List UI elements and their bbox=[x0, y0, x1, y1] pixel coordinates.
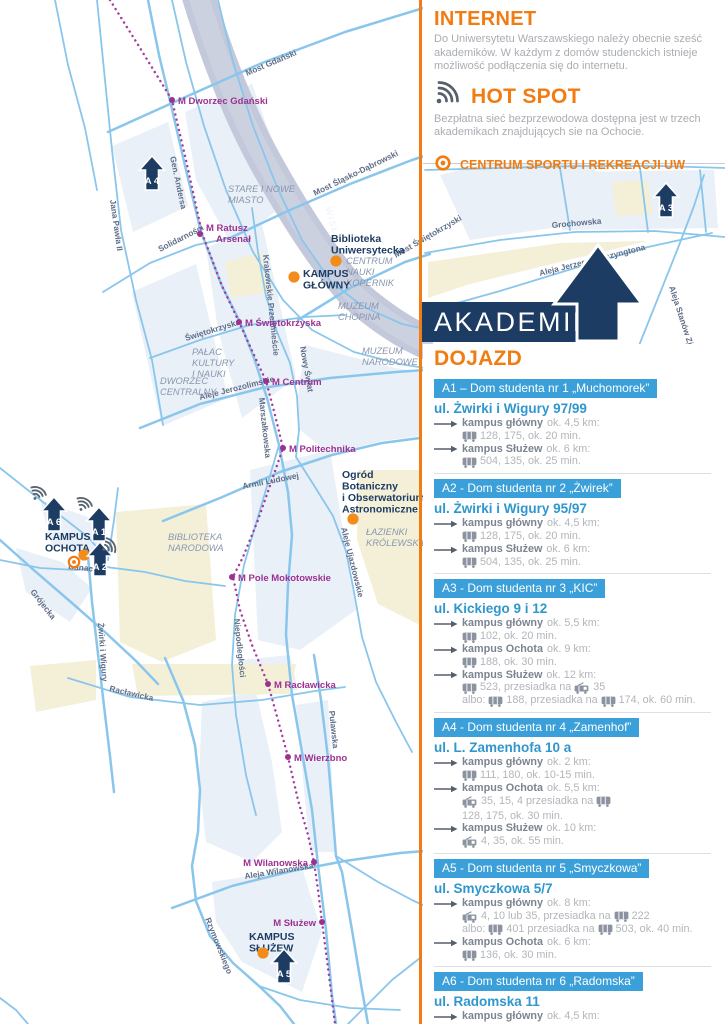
akademiki-poster: WISŁAMost GdańskiGen. AndersaJana Pawła … bbox=[0, 0, 725, 1024]
route: kampus głównyok. 5,5 km:102, ok. 20 min. bbox=[434, 618, 711, 643]
metro-station-label: M Służew bbox=[273, 918, 316, 929]
route-detail-text: 188, ok. 30 min. bbox=[480, 657, 557, 669]
route-detail-text: 102, ok. 20 min. bbox=[480, 631, 557, 643]
district-label: MIASTO bbox=[228, 195, 263, 205]
route-destination: kampus Ochota bbox=[462, 644, 543, 656]
bus-icon bbox=[462, 557, 477, 568]
place-label: i Obserwatorium bbox=[342, 492, 425, 504]
route-detail-text: 35 bbox=[593, 682, 605, 694]
route-detail-row: 504, 135, ok. 25 min. bbox=[434, 557, 711, 569]
place-label: Botaniczny bbox=[342, 481, 398, 493]
bus-icon bbox=[598, 924, 613, 935]
metro-station-dot bbox=[229, 574, 235, 580]
district-label: MUZEUM bbox=[362, 346, 403, 356]
route: kampus Ochotaok. 5,5 km:35, 15, 4 przesi… bbox=[434, 783, 711, 823]
place-label: GŁÓWNY bbox=[303, 279, 350, 292]
street-label: Most Gdański bbox=[244, 47, 298, 77]
dojazd-panel: DOJAZD A1 – Dom studenta nr 1 „Muchomore… bbox=[423, 344, 725, 1024]
metro-station-label: Arsenał bbox=[216, 234, 251, 245]
route: kampus Ochotaok. 9 km:188, ok. 30 min. bbox=[434, 644, 711, 669]
route: kampus głównyok. 4,5 km:9, 7, 25 i przes… bbox=[434, 1011, 711, 1024]
district-label: DWORZEC bbox=[160, 376, 208, 386]
map-arrow-label: A 4 bbox=[145, 176, 160, 187]
campus-dot bbox=[330, 255, 341, 266]
route-destination: kampus Służew bbox=[462, 823, 542, 835]
district-label: MUZEUM bbox=[338, 301, 379, 311]
bus-icon bbox=[488, 924, 503, 935]
route: kampus Ochotaok. 6 km:136, ok. 30 min. bbox=[434, 937, 711, 962]
bus-icon bbox=[462, 683, 477, 694]
route-detail-text: 401 przesiadka na bbox=[506, 924, 594, 936]
orange-divider-line bbox=[419, 0, 422, 1024]
route-distance: ok. 9 km: bbox=[547, 644, 591, 656]
route-detail-text: 222 bbox=[632, 911, 650, 923]
route-detail-row: 102, ok. 20 min. bbox=[434, 631, 711, 643]
route-detail-text: 504, 135, ok. 25 min. bbox=[480, 557, 581, 569]
street-label: Żwirki i Wigury bbox=[96, 622, 110, 682]
campus-dot bbox=[257, 947, 268, 958]
hotspot-text: Bezpłatna sieć bezprzewodowa dostępna je… bbox=[434, 113, 711, 140]
route-detail-row: albo: 401 przesiadka na 503, ok. 40 min. bbox=[434, 924, 711, 936]
route-destination: kampus Służew bbox=[462, 544, 542, 556]
route-detail-text: 504, 135, ok. 25 min. bbox=[480, 456, 581, 468]
district-label: BIBLIOTEKA bbox=[168, 532, 222, 542]
route-distance: ok. 4,5 km: bbox=[547, 518, 600, 530]
route-distance: ok. 4,5 km: bbox=[547, 1011, 600, 1023]
place-label: KAMPUS bbox=[45, 531, 91, 543]
internet-heading: INTERNET bbox=[434, 8, 711, 31]
route-detail-text: 136, ok. 30 min. bbox=[480, 950, 557, 962]
metro-station-dot bbox=[265, 681, 271, 687]
metro-station-label: M Wilanowska bbox=[243, 858, 309, 869]
street-label: Most Śląsko-Dąbrowski bbox=[311, 147, 400, 198]
district-label: KOPERNIK bbox=[346, 278, 395, 288]
district-label: NAUKI bbox=[346, 267, 375, 277]
route-detail-text: 523, przesiadka na bbox=[480, 682, 571, 694]
route-destination: kampus Służew bbox=[462, 670, 542, 682]
street-label: Marszałkowska bbox=[257, 397, 273, 459]
district-label: KULTURY bbox=[192, 358, 235, 368]
route-destination: kampus Ochota bbox=[462, 783, 543, 795]
route: kampus głównyok. 4,5 km:128, 175, ok. 20… bbox=[434, 518, 711, 543]
bullseye-icon bbox=[434, 154, 452, 177]
map-block bbox=[30, 660, 96, 712]
route-arrow-icon bbox=[434, 646, 458, 654]
street-label: Solidarności bbox=[156, 222, 205, 254]
route-arrow-icon bbox=[434, 620, 458, 628]
sport-center-label: CENTRUM SPORTU I REKREACJI UW bbox=[460, 158, 685, 172]
route: kampus głównyok. 4,5 km:128, 175, ok. 20… bbox=[434, 418, 711, 443]
map-arrow-label: A 1 bbox=[92, 527, 107, 538]
metro-station-dot bbox=[280, 445, 286, 451]
route-detail-text: 35, 15, 4 przesiadka na bbox=[481, 796, 593, 808]
route-arrow-icon bbox=[434, 671, 458, 679]
route-arrow-icon bbox=[434, 445, 458, 453]
dorm-address: ul. Żwirki i Wigury 95/97 bbox=[434, 501, 711, 516]
metro-station-label: M Wierzbno bbox=[294, 753, 347, 764]
route: kampus głównyok. 8 km:4, 10 lub 35, prze… bbox=[434, 898, 711, 936]
dorm-address: ul. L. Zamenhofa 10 a bbox=[434, 740, 711, 755]
map-block bbox=[132, 664, 296, 696]
wifi-icon bbox=[76, 495, 92, 511]
dorm-block: A5 - Dom studenta nr 5 „Smyczkowa”ul. Sm… bbox=[434, 859, 711, 967]
route-arrow-icon bbox=[434, 825, 458, 833]
route-distance: ok. 4,5 km: bbox=[547, 418, 600, 430]
map-arrow-label: A 5 bbox=[277, 969, 292, 980]
route-destination: kampus główny bbox=[462, 1011, 543, 1023]
dorm-address: ul. Kickiego 9 i 12 bbox=[434, 601, 711, 616]
map-arrow-label: A 6 bbox=[47, 517, 61, 528]
route-detail-row: 111, 180, ok. 10-15 min. bbox=[434, 770, 711, 782]
place-label: Ogród bbox=[342, 469, 374, 481]
tram-icon bbox=[462, 796, 478, 808]
metro-station-dot bbox=[263, 378, 269, 384]
route-distance: ok. 5,5 km: bbox=[547, 783, 600, 795]
bullseye-icon bbox=[69, 557, 79, 567]
district-label: ŁAZIENKI bbox=[366, 527, 408, 537]
route-detail-row: 136, ok. 30 min. bbox=[434, 950, 711, 962]
route-distance: ok. 5,5 km: bbox=[547, 618, 600, 630]
route-distance: ok. 10 km: bbox=[546, 823, 596, 835]
dorm-block: A3 - Dom studenta nr 3 „KIC”ul. Kickiego… bbox=[434, 579, 711, 713]
metro-station-dot bbox=[236, 319, 242, 325]
campus-dot bbox=[347, 513, 358, 524]
route-detail-text: 128, 175, ok. 20 min. bbox=[480, 531, 581, 543]
tram-icon bbox=[462, 911, 478, 923]
route-arrow-icon bbox=[434, 520, 458, 528]
route-distance: ok. 2 km: bbox=[547, 757, 591, 769]
metro-station-dot bbox=[319, 919, 325, 925]
road bbox=[336, 856, 425, 906]
place-label: Uniwersytecka bbox=[331, 245, 405, 257]
bus-icon bbox=[488, 696, 503, 707]
route-detail-row: 188, ok. 30 min. bbox=[434, 657, 711, 669]
district-label: CHOPINA bbox=[338, 312, 380, 322]
route-detail-row: 35, 15, 4 przesiadka na 128, 175, ok. 30… bbox=[434, 796, 711, 823]
route-detail-text: 4, 35, ok. 55 min. bbox=[481, 836, 564, 848]
place-label: Biblioteka bbox=[331, 233, 381, 245]
route-destination: kampus główny bbox=[462, 518, 543, 530]
route-destination: kampus główny bbox=[462, 898, 543, 910]
bus-icon bbox=[462, 632, 477, 643]
route-destination: kampus główny bbox=[462, 618, 543, 630]
route-detail-text: 128, 175, ok. 20 min. bbox=[480, 431, 581, 443]
route-distance: ok. 8 km: bbox=[547, 898, 591, 910]
road bbox=[55, 0, 97, 190]
route-destination: kampus Ochota bbox=[462, 937, 543, 949]
route-arrow-icon bbox=[434, 546, 458, 554]
route-destination: kampus główny bbox=[462, 418, 543, 430]
metro-station-label: M Dworzec Gdański bbox=[178, 96, 268, 107]
district-label: NARODOWE bbox=[362, 357, 419, 367]
metro-station-label: M Racławicka bbox=[274, 680, 336, 691]
hotspot-heading: HOT SPOT bbox=[471, 85, 581, 109]
tram-icon bbox=[574, 682, 590, 694]
dorm-title: A6 - Dom studenta nr 6 „Radomska” bbox=[434, 972, 643, 991]
dorm-block: A2 - Dom studenta nr 2 „Żwirek”ul. Żwirk… bbox=[434, 479, 711, 574]
metro-station-dot bbox=[169, 97, 175, 103]
metro-station-dot bbox=[285, 754, 291, 760]
place-label: KAMPUS bbox=[303, 268, 349, 280]
dorm-title: A1 – Dom studenta nr 1 „Muchomorek” bbox=[434, 379, 657, 398]
route-detail-row: 504, 135, ok. 25 min. bbox=[434, 456, 711, 468]
route: kampus Służewok. 6 km:504, 135, ok. 25 m… bbox=[434, 544, 711, 569]
route-arrow-icon bbox=[434, 900, 458, 908]
info-box: INTERNET Do Uniwersytetu Warszawskiego n… bbox=[423, 0, 725, 164]
route-detail-text: 111, 180, ok. 10-15 min. bbox=[480, 770, 595, 782]
dorm-title: A4 - Dom studenta nr 4 „Zamenhof” bbox=[434, 718, 639, 737]
internet-text: Do Uniwersytetu Warszawskiego należy obe… bbox=[434, 33, 711, 74]
map-block bbox=[199, 692, 282, 862]
route-detail-row: 4, 35, ok. 55 min. bbox=[434, 836, 711, 848]
bus-icon bbox=[462, 457, 477, 468]
route-detail-text: albo: bbox=[462, 924, 485, 936]
route-detail-text: 188, przesiadka na bbox=[506, 695, 597, 707]
route-detail-text: 503, ok. 40 min. bbox=[616, 924, 693, 936]
district-label: CENTRALNY bbox=[160, 387, 217, 397]
dorm-title: A5 - Dom studenta nr 5 „Smyczkowa” bbox=[434, 859, 649, 878]
bus-icon bbox=[462, 657, 477, 668]
dorm-block: A1 – Dom studenta nr 1 „Muchomorek”ul. Ż… bbox=[434, 379, 711, 474]
district-label: STARE I NOWE bbox=[228, 184, 296, 194]
district-label: NARODOWA bbox=[168, 543, 224, 553]
bus-icon bbox=[462, 950, 477, 961]
dorm-title: A3 - Dom studenta nr 3 „KIC” bbox=[434, 579, 605, 598]
route-distance: ok. 6 km: bbox=[546, 544, 590, 556]
route-arrow-icon bbox=[434, 785, 458, 793]
street-label: Jana Pawła II bbox=[108, 199, 125, 252]
dorm-address: ul. Smyczkowa 5/7 bbox=[434, 881, 711, 896]
akademiki-arrow-icon bbox=[546, 242, 650, 349]
route-arrow-icon bbox=[434, 939, 458, 947]
route: kampus głównyok. 2 km:111, 180, ok. 10-1… bbox=[434, 757, 711, 782]
dorm-title: A2 - Dom studenta nr 2 „Żwirek” bbox=[434, 479, 621, 498]
metro-station-label: M Centrum bbox=[272, 377, 322, 388]
route-arrow-icon bbox=[434, 759, 458, 767]
dorm-block: A6 - Dom studenta nr 6 „Radomska”ul. Rad… bbox=[434, 972, 711, 1024]
campus-dot bbox=[288, 271, 299, 282]
bus-icon bbox=[462, 431, 477, 442]
bus-icon bbox=[462, 770, 477, 781]
route-destination: kampus Służew bbox=[462, 444, 542, 456]
district-label: PAŁAC bbox=[192, 347, 222, 357]
bus-icon bbox=[596, 796, 611, 807]
bus-icon bbox=[614, 911, 629, 922]
route-destination: kampus główny bbox=[462, 757, 543, 769]
map-arrow-label: A 2 bbox=[93, 562, 107, 573]
bus-icon bbox=[462, 531, 477, 542]
map-arrow-label: A 3 bbox=[659, 203, 673, 214]
route-distance: ok. 6 km: bbox=[547, 937, 591, 949]
dorm-address: ul. Żwirki i Wigury 97/99 bbox=[434, 401, 711, 416]
dorm-list: A1 – Dom studenta nr 1 „Muchomorek”ul. Ż… bbox=[434, 379, 711, 1024]
metro-station-label: M Politechnika bbox=[289, 444, 356, 455]
route: kampus Służewok. 12 km:523, przesiadka n… bbox=[434, 670, 711, 708]
metro-station-dot bbox=[197, 231, 203, 237]
route: kampus Służewok. 6 km:504, 135, ok. 25 m… bbox=[434, 444, 711, 469]
bus-icon bbox=[601, 696, 616, 707]
route-arrow-icon bbox=[434, 1013, 458, 1021]
dorm-address: ul. Radomska 11 bbox=[434, 994, 711, 1009]
metro-station-label: M Pole Mokotowskie bbox=[238, 573, 331, 584]
metro-station-dot bbox=[311, 859, 317, 865]
route-detail-text: 128, 175, ok. 30 min. bbox=[462, 811, 563, 823]
route-detail-text: albo: bbox=[462, 695, 485, 707]
metro-station-label: M Ratusz bbox=[206, 223, 248, 234]
route-detail-row: 128, 175, ok. 20 min. bbox=[434, 531, 711, 543]
route-detail-row: 523, przesiadka na 35 bbox=[434, 682, 711, 694]
place-label: KAMPUS bbox=[249, 931, 295, 943]
wifi-icon bbox=[434, 80, 464, 111]
tram-icon bbox=[462, 836, 478, 848]
dorm-block: A4 - Dom studenta nr 4 „Zamenhof”ul. L. … bbox=[434, 718, 711, 854]
metro-station-label: M Świętokrzyska bbox=[245, 317, 322, 329]
route-distance: ok. 6 km: bbox=[546, 444, 590, 456]
route-detail-text: 174, ok. 60 min. bbox=[619, 695, 696, 707]
route-detail-row: albo: 188, przesiadka na 174, ok. 60 min… bbox=[434, 695, 711, 707]
road bbox=[0, 998, 28, 1024]
route-distance: ok. 12 km: bbox=[546, 670, 596, 682]
route-arrow-icon bbox=[434, 420, 458, 428]
route: kampus Służewok. 10 km:4, 35, ok. 55 min… bbox=[434, 823, 711, 848]
district-label: CENTRUM bbox=[346, 256, 393, 266]
route-detail-row: 128, 175, ok. 20 min. bbox=[434, 431, 711, 443]
route-detail-row: 4, 10 lub 35, przesiadka na 222 bbox=[434, 911, 711, 923]
route-detail-text: 4, 10 lub 35, przesiadka na bbox=[481, 911, 611, 923]
dojazd-heading: DOJAZD bbox=[434, 347, 711, 371]
